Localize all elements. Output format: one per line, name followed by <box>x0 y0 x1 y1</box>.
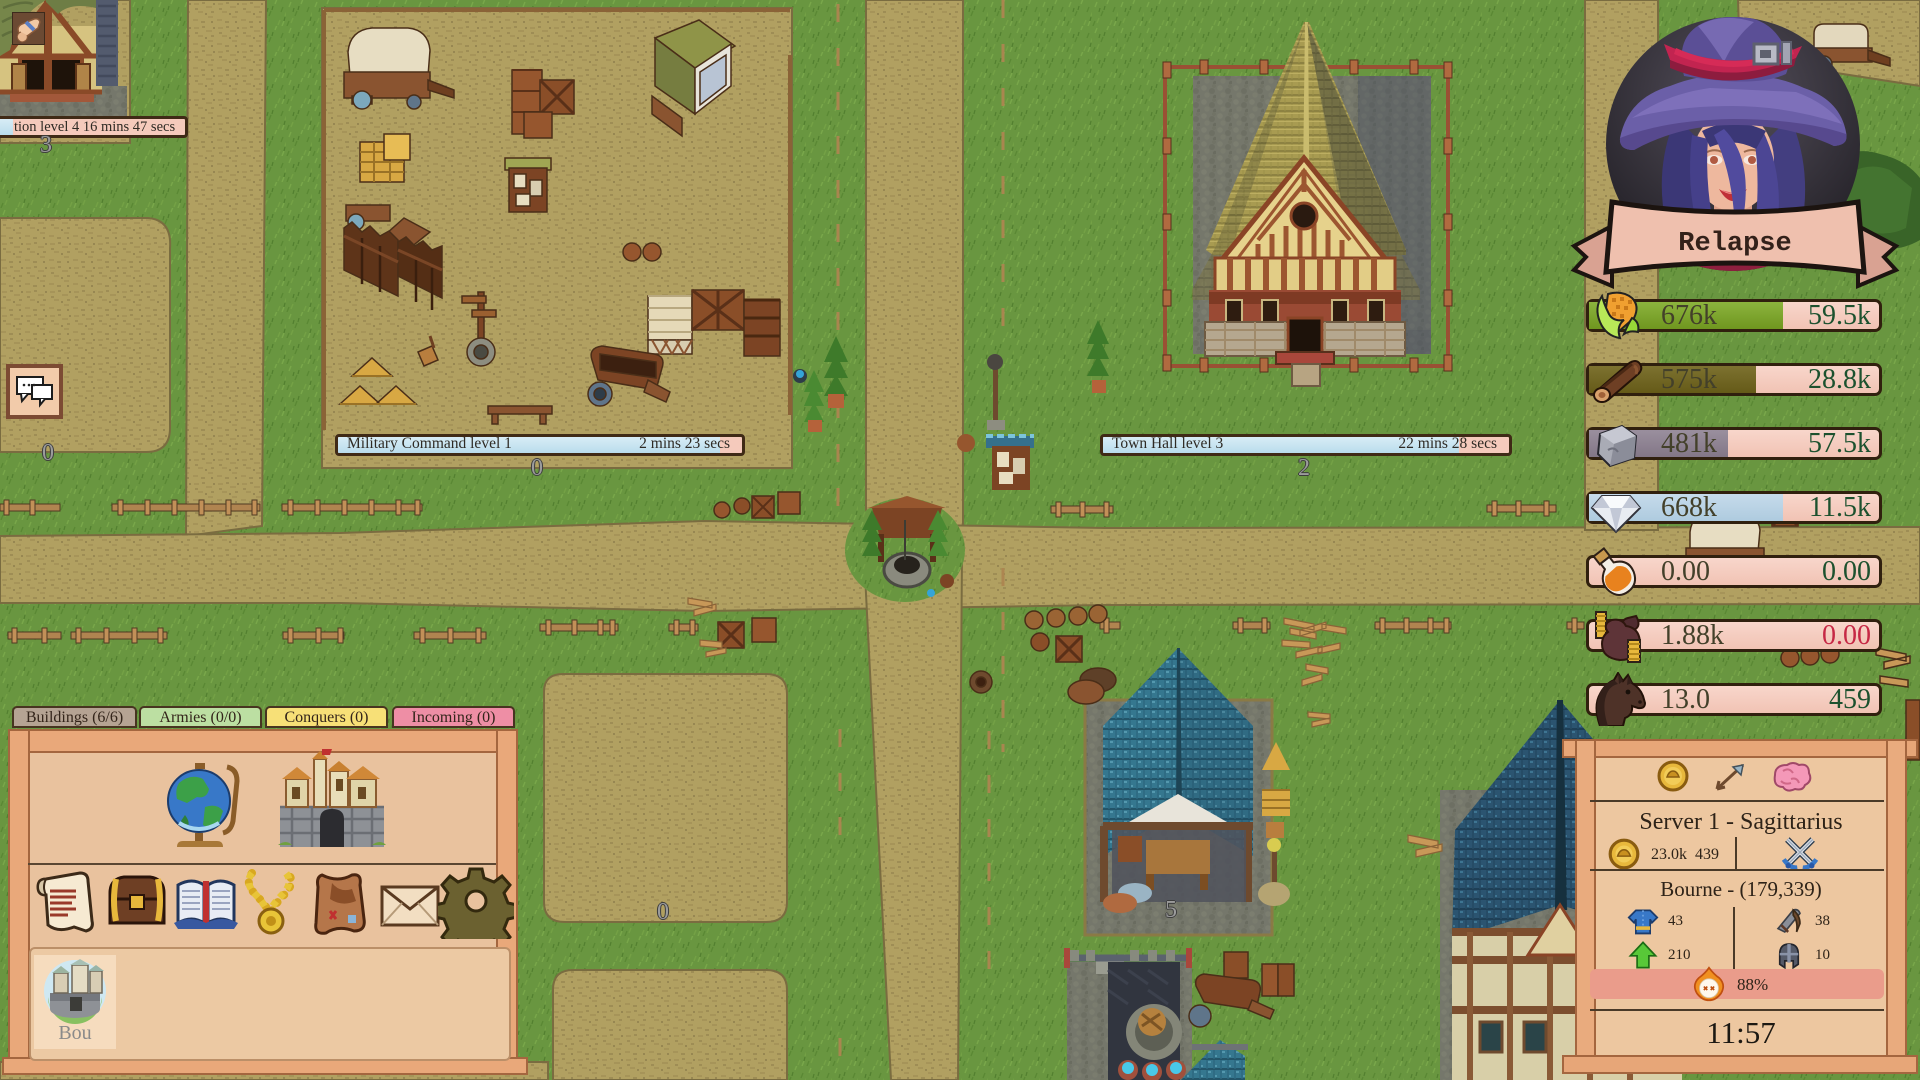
svg-text:Relapse: Relapse <box>1678 229 1791 259</box>
